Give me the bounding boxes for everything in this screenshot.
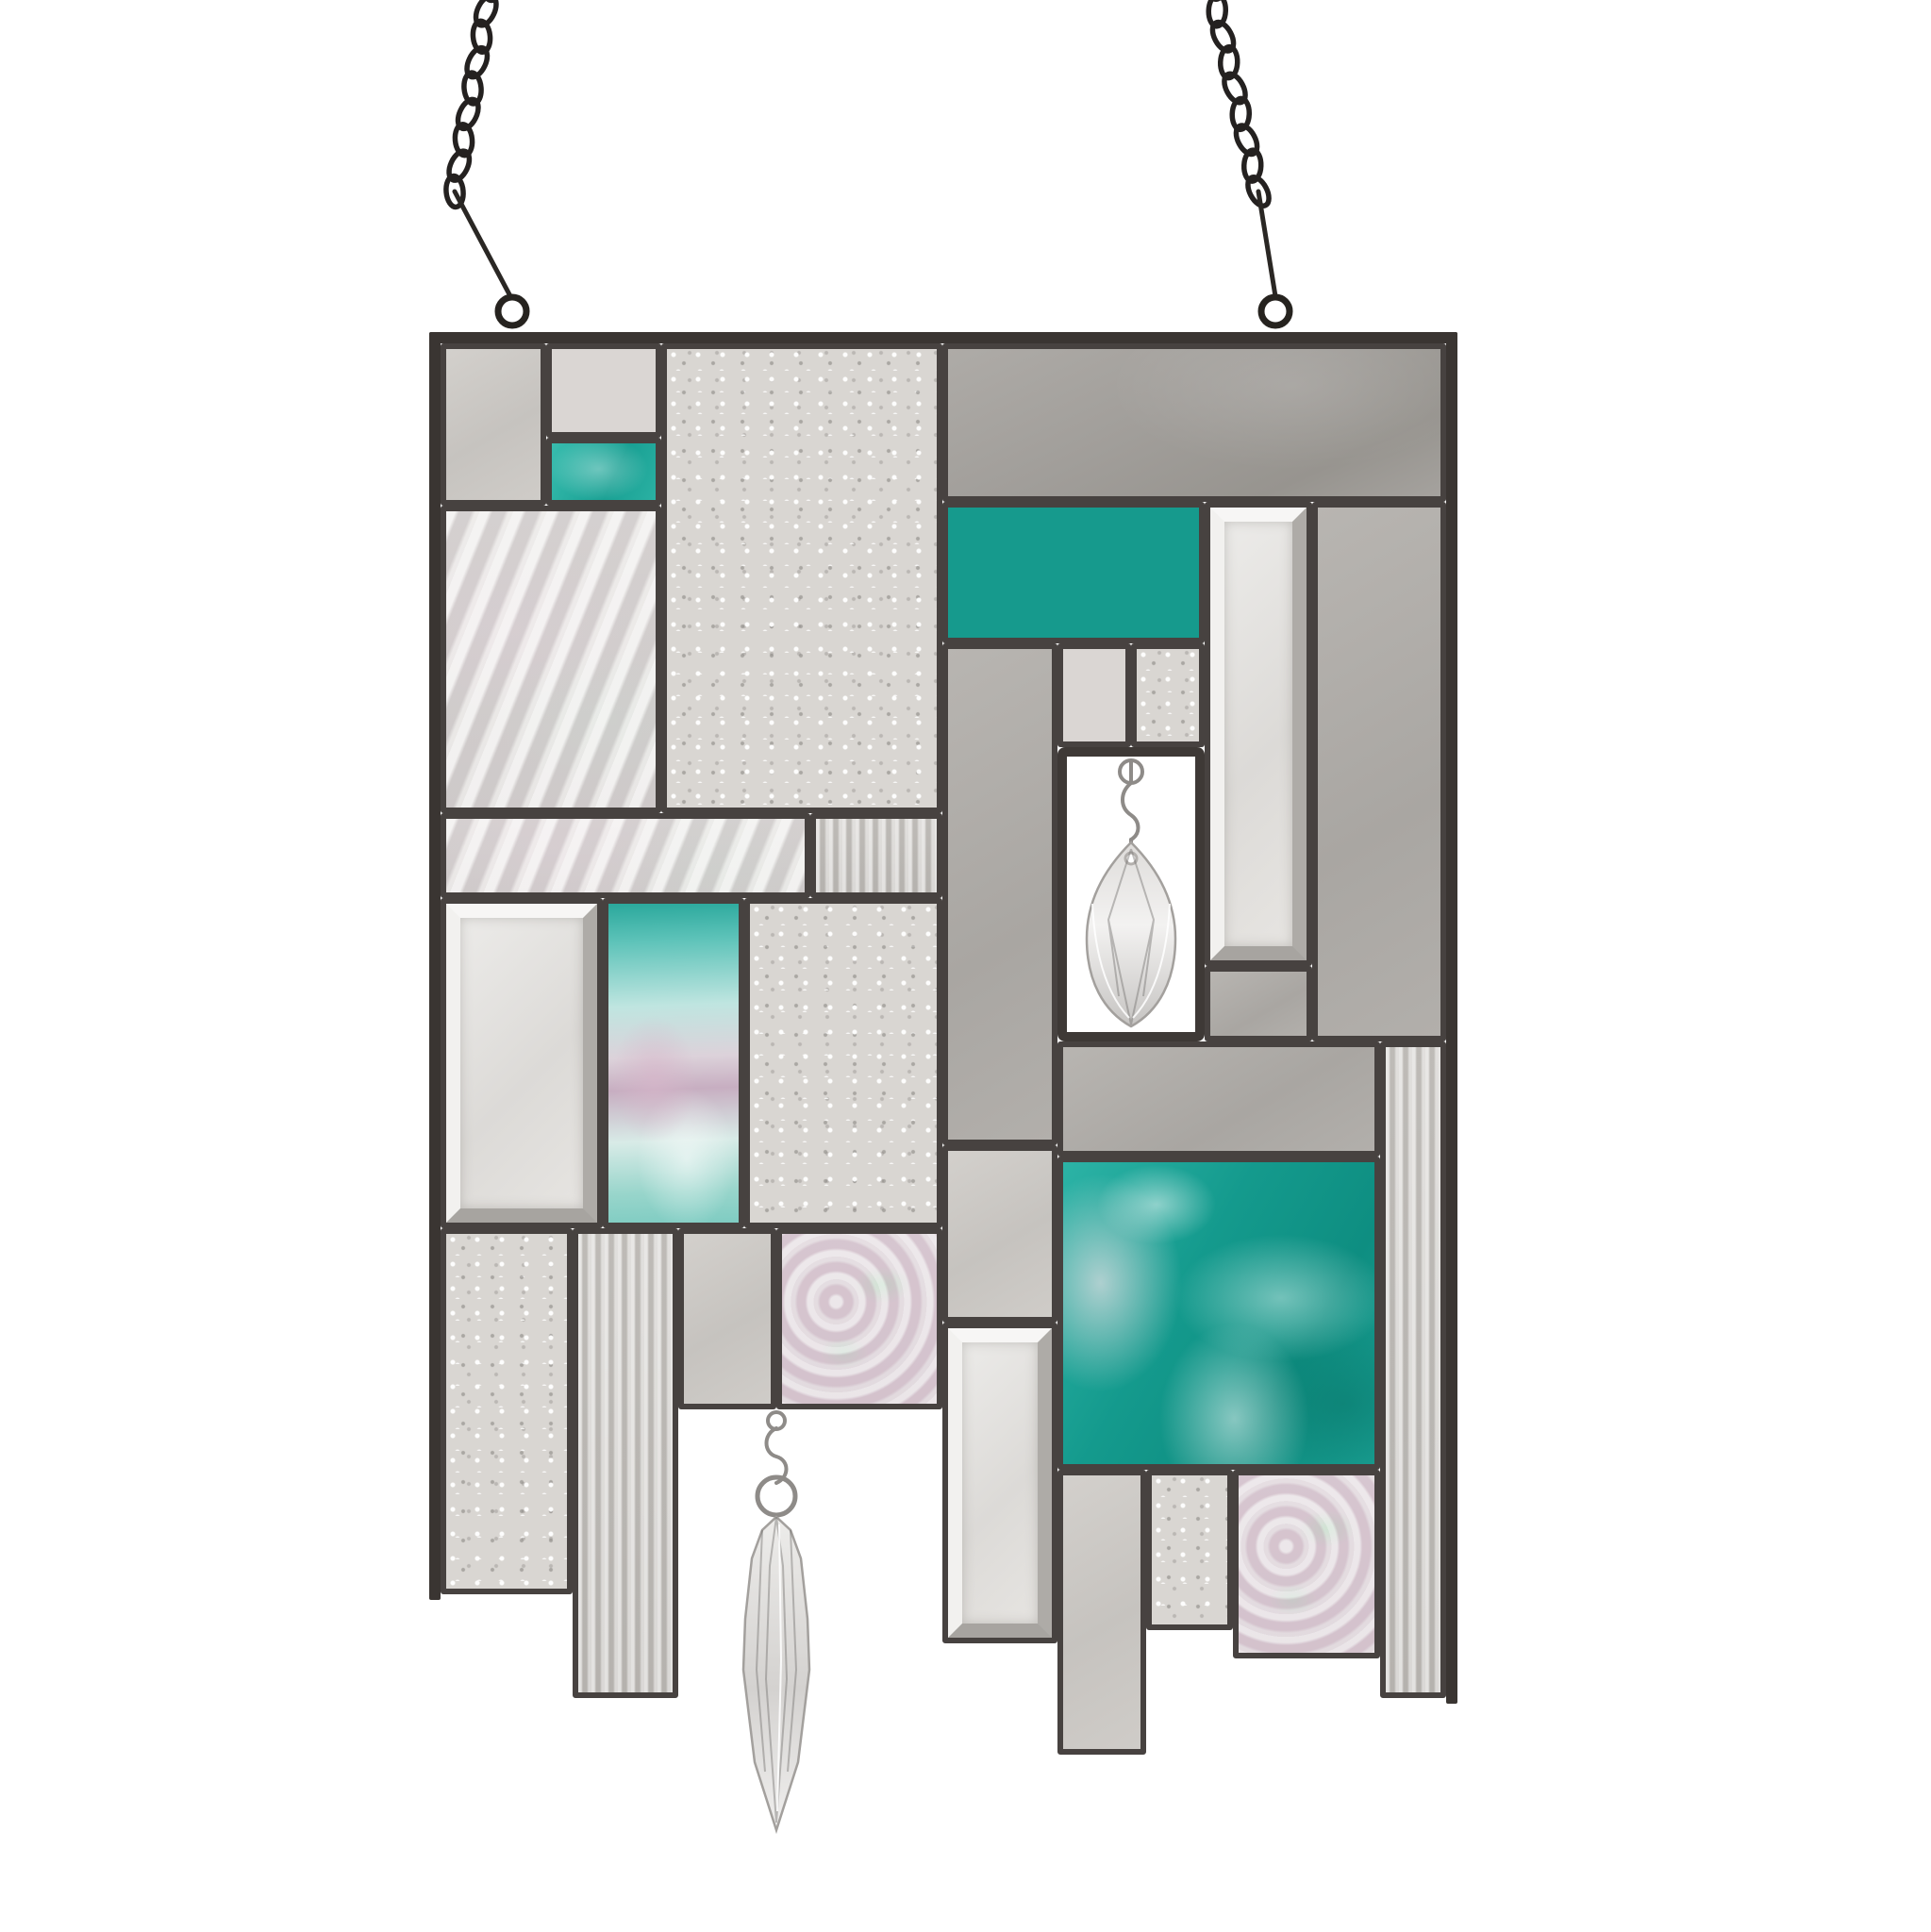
glass-piece-slab-center	[942, 643, 1057, 1145]
hanging-chain	[445, 0, 1290, 325]
glass-piece-smooth-bottom-mid	[678, 1228, 776, 1409]
glass-piece-top-left-iridescent	[546, 343, 661, 438]
glass-piece-teal-small	[546, 438, 661, 506]
glass-piece-teal-big	[1057, 1157, 1380, 1470]
chain-link	[454, 124, 474, 156]
icicle-body	[743, 1517, 809, 1830]
glass-piece-smoky-top-right	[942, 343, 1446, 502]
glass-piece-bevel-tall	[1205, 502, 1312, 966]
chain-link	[472, 0, 500, 28]
glass-piece-iridswirl-bottom	[1233, 1470, 1380, 1658]
chain-link	[1232, 122, 1261, 158]
chain-link	[463, 44, 491, 80]
glass-piece-ripple-col	[573, 1228, 678, 1698]
chain-link	[454, 96, 482, 132]
glass-piece-irid-square	[1057, 643, 1131, 747]
panel-hanging-ring	[1261, 297, 1290, 325]
glass-piece-granite-col	[744, 898, 942, 1228]
chain-link	[1232, 98, 1250, 130]
chain-link	[1243, 150, 1261, 182]
glass-piece-gray-col-right	[1312, 502, 1446, 1041]
chain-link	[481, 0, 501, 1]
open-window-cutout	[1057, 747, 1205, 1041]
glass-piece-granite-square	[1131, 643, 1205, 747]
frame-right	[1446, 332, 1457, 1704]
chain-link	[1208, 0, 1226, 26]
icicle-top-ring	[757, 1477, 795, 1515]
chain-link	[1208, 19, 1238, 55]
glass-piece-granite-bottom-left	[441, 1228, 573, 1594]
glass-piece-top-left-white	[441, 343, 546, 506]
icicle-s-hook	[767, 1428, 787, 1483]
chain-link	[445, 148, 474, 184]
glass-piece-granite-top	[661, 343, 942, 813]
chain-link	[1220, 46, 1238, 78]
panel-hanging-ring	[498, 297, 526, 325]
glass-piece-bevel-left	[441, 898, 603, 1228]
chain-link	[1220, 71, 1249, 107]
glass-piece-teal-mid	[942, 502, 1205, 643]
glass-piece-teal-pink-column	[603, 898, 744, 1228]
chain-end-wire	[1258, 192, 1275, 296]
chain-link	[1243, 174, 1273, 209]
suncatcher-product-photo	[0, 0, 1931, 1932]
chain-link	[445, 175, 465, 208]
glass-piece-iridswirl-small	[776, 1228, 942, 1409]
glass-piece-bevel-bottom	[942, 1323, 1057, 1643]
glass-piece-slab-lower	[942, 1145, 1057, 1323]
chain-link	[463, 72, 483, 104]
chain-link	[1196, 0, 1225, 3]
glass-piece-ripple-small	[810, 813, 942, 898]
glass-piece-gray-band	[1057, 1041, 1380, 1157]
glass-piece-wavy-left	[441, 506, 661, 813]
icicle-crystal	[743, 1412, 809, 1830]
glass-piece-irid-band	[441, 813, 810, 898]
chain-link	[472, 21, 491, 53]
frame-left	[429, 332, 441, 1600]
icicle-attach-ring	[768, 1412, 785, 1429]
glass-piece-ripple-col-right	[1380, 1041, 1446, 1698]
frame-top	[429, 332, 1457, 343]
glass-piece-granite-bottom-right	[1146, 1470, 1233, 1630]
glass-piece-fill-under-bevel	[1205, 966, 1312, 1041]
glass-piece-white-col-bottom	[1057, 1470, 1146, 1755]
chain-end-wire	[455, 192, 510, 296]
